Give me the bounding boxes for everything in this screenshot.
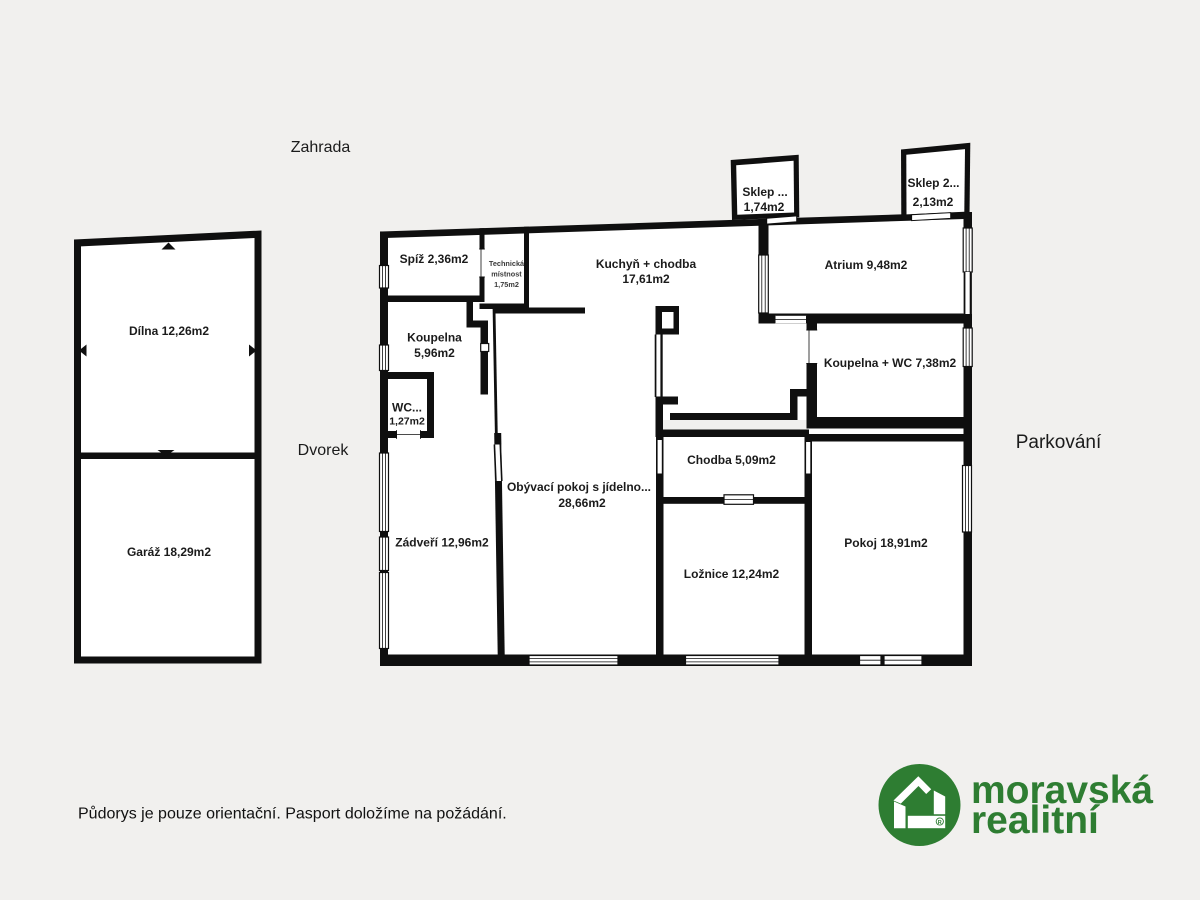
svg-text:Ložnice 12,24m2: Ložnice 12,24m2 bbox=[684, 567, 780, 581]
svg-text:5,96m2: 5,96m2 bbox=[414, 346, 455, 360]
svg-text:2,13m2: 2,13m2 bbox=[913, 195, 954, 209]
svg-text:WC...: WC... bbox=[392, 401, 422, 415]
svg-text:Spíž 2,36m2: Spíž 2,36m2 bbox=[400, 252, 469, 266]
svg-text:Atrium 9,48m2: Atrium 9,48m2 bbox=[825, 258, 908, 272]
svg-text:Sklep 2...: Sklep 2... bbox=[907, 176, 959, 190]
svg-text:Dvorek: Dvorek bbox=[298, 442, 350, 459]
svg-text:realitní: realitní bbox=[971, 799, 1100, 842]
svg-text:Technická: Technická bbox=[489, 259, 525, 268]
svg-text:Zahrada: Zahrada bbox=[291, 139, 351, 156]
svg-text:Koupelna + WC 7,38m2: Koupelna + WC 7,38m2 bbox=[824, 356, 957, 370]
svg-text:28,66m2: 28,66m2 bbox=[558, 496, 606, 510]
svg-text:Dílna 12,26m2: Dílna 12,26m2 bbox=[129, 324, 209, 338]
svg-text:17,61m2: 17,61m2 bbox=[622, 272, 670, 286]
svg-text:Parkování: Parkování bbox=[1016, 432, 1102, 453]
svg-text:R: R bbox=[938, 820, 942, 826]
svg-text:Zádveří 12,96m2: Zádveří 12,96m2 bbox=[395, 536, 489, 550]
svg-text:Půdorys je pouze orientační. P: Půdorys je pouze orientační. Pasport dol… bbox=[78, 805, 507, 823]
svg-text:Pokoj 18,91m2: Pokoj 18,91m2 bbox=[844, 536, 928, 550]
svg-text:Koupelna: Koupelna bbox=[407, 331, 462, 345]
svg-text:1,75m2: 1,75m2 bbox=[494, 280, 519, 289]
svg-text:Obývací pokoj s jídelno...: Obývací pokoj s jídelno... bbox=[507, 480, 651, 494]
svg-text:1,27m2: 1,27m2 bbox=[389, 416, 425, 428]
svg-text:1,74m2: 1,74m2 bbox=[744, 200, 785, 214]
svg-text:Sklep ...: Sklep ... bbox=[742, 185, 787, 199]
svg-text:místnost: místnost bbox=[491, 270, 522, 279]
svg-text:Garáž 18,29m2: Garáž 18,29m2 bbox=[127, 545, 211, 559]
svg-text:Chodba 5,09m2: Chodba 5,09m2 bbox=[687, 453, 776, 467]
svg-text:Kuchyň + chodba: Kuchyň + chodba bbox=[596, 257, 697, 271]
